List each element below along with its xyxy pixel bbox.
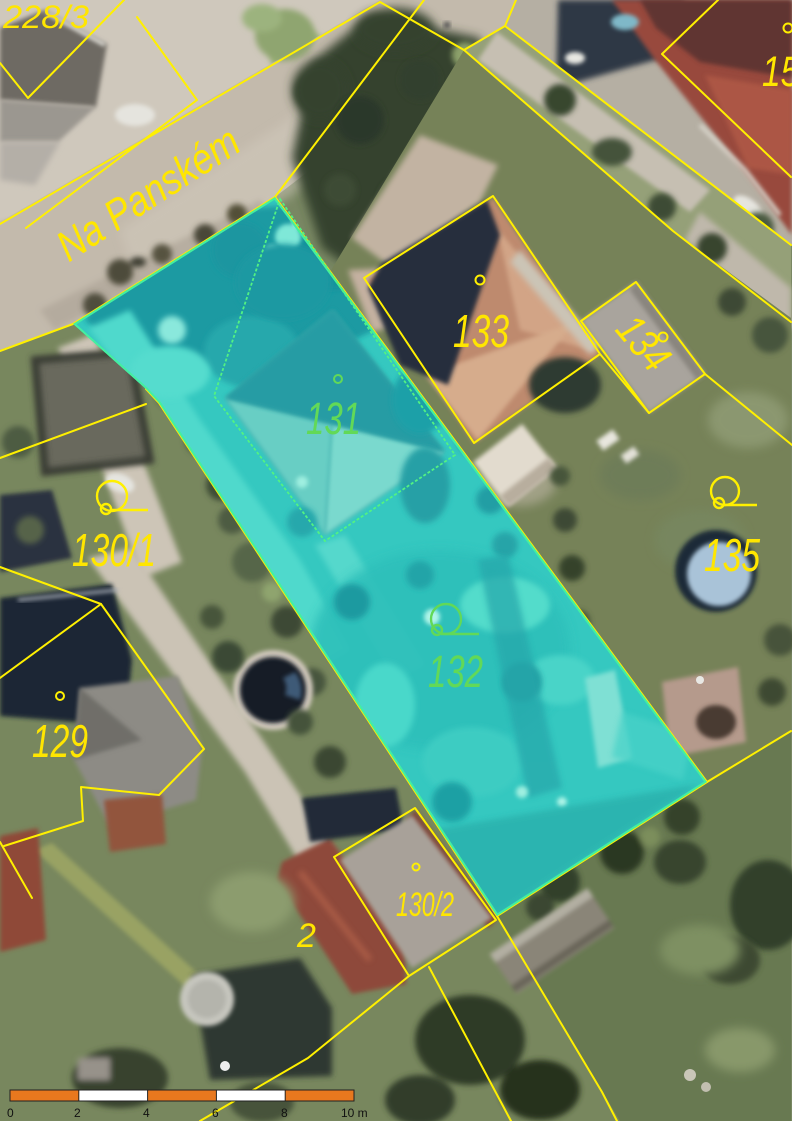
svg-text:130/1: 130/1 [72,524,156,576]
svg-text:8: 8 [281,1106,288,1120]
svg-text:132: 132 [428,646,483,697]
svg-text:228/3: 228/3 [2,0,89,35]
svg-text:133: 133 [453,305,509,357]
svg-text:2: 2 [74,1106,81,1120]
svg-text:135: 135 [704,529,760,581]
svg-text:156: 156 [762,48,792,96]
svg-text:6: 6 [212,1106,219,1120]
svg-text:10 m: 10 m [341,1106,368,1120]
svg-text:0: 0 [7,1106,14,1120]
svg-text:129: 129 [32,715,88,767]
svg-text:130/2: 130/2 [396,886,454,924]
svg-text:2: 2 [296,917,316,955]
svg-text:4: 4 [143,1106,150,1120]
svg-text:131: 131 [306,393,361,444]
